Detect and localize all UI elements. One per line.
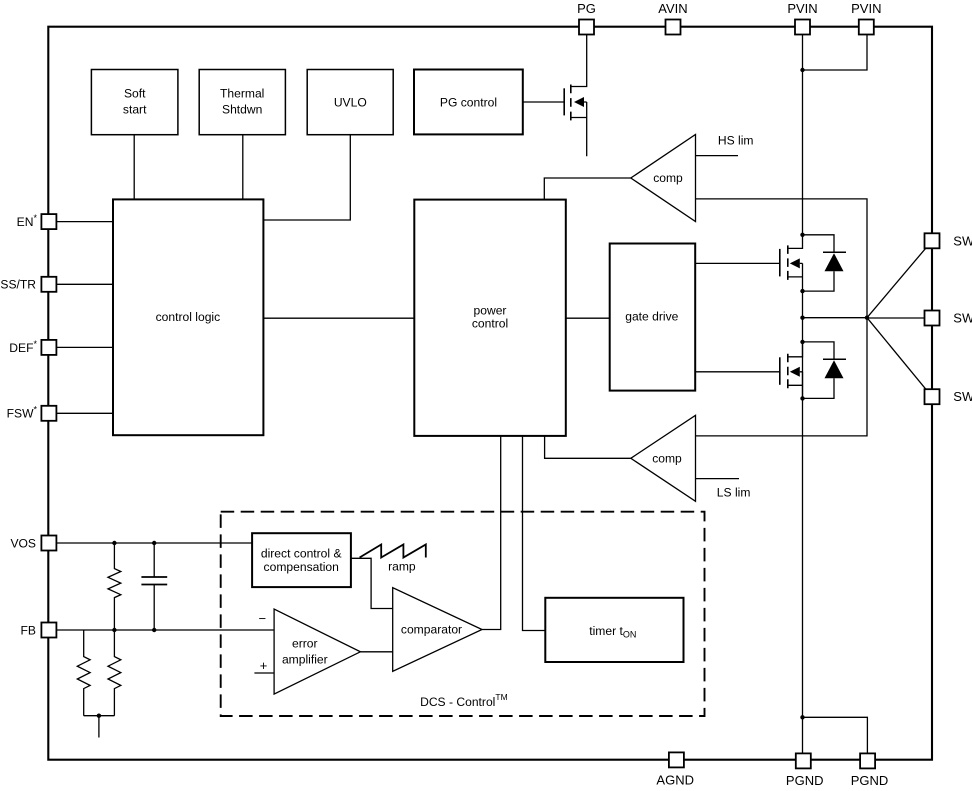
- svg-text:control logic: control logic: [156, 310, 221, 324]
- svg-text:PVIN: PVIN: [851, 1, 881, 16]
- svg-text:VOS: VOS: [10, 536, 36, 550]
- svg-text:control: control: [472, 317, 508, 331]
- svg-text:−: −: [259, 611, 267, 626]
- svg-text:PGND: PGND: [851, 773, 889, 788]
- svg-text:DCS - ControlTM: DCS - ControlTM: [420, 692, 508, 709]
- svg-text:EN*: EN*: [17, 213, 38, 229]
- svg-text:gate drive: gate drive: [625, 310, 678, 324]
- svg-text:UVLO: UVLO: [334, 95, 367, 109]
- svg-text:PVIN: PVIN: [787, 1, 817, 16]
- svg-text:amplifier: amplifier: [282, 653, 328, 667]
- svg-text:ramp: ramp: [388, 559, 416, 573]
- svg-text:power: power: [474, 303, 507, 317]
- svg-text:SW: SW: [953, 233, 972, 248]
- svg-text:FB: FB: [21, 623, 36, 637]
- svg-text:DEF*: DEF*: [9, 339, 37, 355]
- svg-text:comp: comp: [653, 171, 683, 185]
- svg-text:compensation: compensation: [264, 560, 339, 574]
- svg-text:Soft: Soft: [124, 87, 146, 101]
- svg-text:direct control &: direct control &: [261, 547, 342, 561]
- svg-text:AGND: AGND: [656, 772, 694, 787]
- svg-text:HS lim: HS lim: [718, 133, 754, 147]
- svg-text:LS lim: LS lim: [717, 486, 751, 500]
- svg-text:PG: PG: [577, 1, 596, 16]
- svg-text:FSW*: FSW*: [7, 405, 38, 421]
- svg-text:error: error: [292, 636, 318, 650]
- svg-text:comp: comp: [652, 451, 682, 465]
- svg-text:PGND: PGND: [786, 773, 824, 788]
- svg-text:Shtdwn: Shtdwn: [222, 103, 262, 117]
- svg-text:start: start: [123, 103, 147, 117]
- svg-text:SS/TR: SS/TR: [0, 278, 36, 292]
- svg-text:Thermal: Thermal: [220, 87, 264, 101]
- svg-text:+: +: [260, 658, 268, 673]
- svg-text:PG control: PG control: [440, 95, 497, 109]
- svg-text:comparator: comparator: [401, 623, 462, 637]
- svg-text:SW: SW: [953, 311, 972, 326]
- svg-text:SW: SW: [953, 389, 972, 404]
- svg-text:AVIN: AVIN: [658, 1, 687, 16]
